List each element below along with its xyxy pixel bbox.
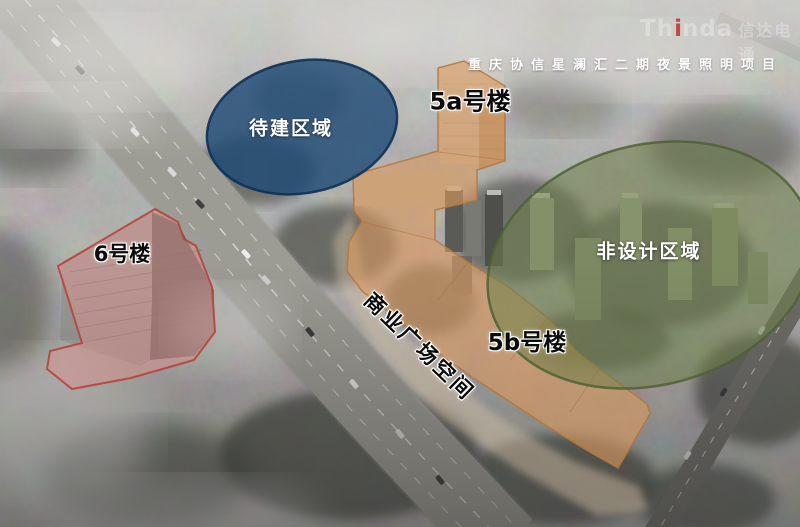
label-building-5b: 5b号楼 — [488, 323, 566, 357]
site-plan: Thinda 信达电通 重庆协信星澜汇二期夜景照明项目 5a号楼 5b号楼 6号… — [0, 0, 800, 527]
label-non-design-area: 非设计区域 — [596, 237, 701, 264]
label-building-5a: 5a号楼 — [430, 82, 511, 117]
label-pending-area: 待建区域 — [249, 114, 333, 141]
project-title: 重庆协信星澜汇二期夜景照明项目 — [468, 54, 798, 73]
brand-accent-letter: i — [674, 16, 682, 42]
label-building-6: 6号楼 — [94, 238, 151, 268]
building-6-region — [47, 209, 215, 389]
brand-latin-suffix: nda — [682, 16, 733, 42]
brand-latin-prefix: Th — [640, 16, 674, 42]
